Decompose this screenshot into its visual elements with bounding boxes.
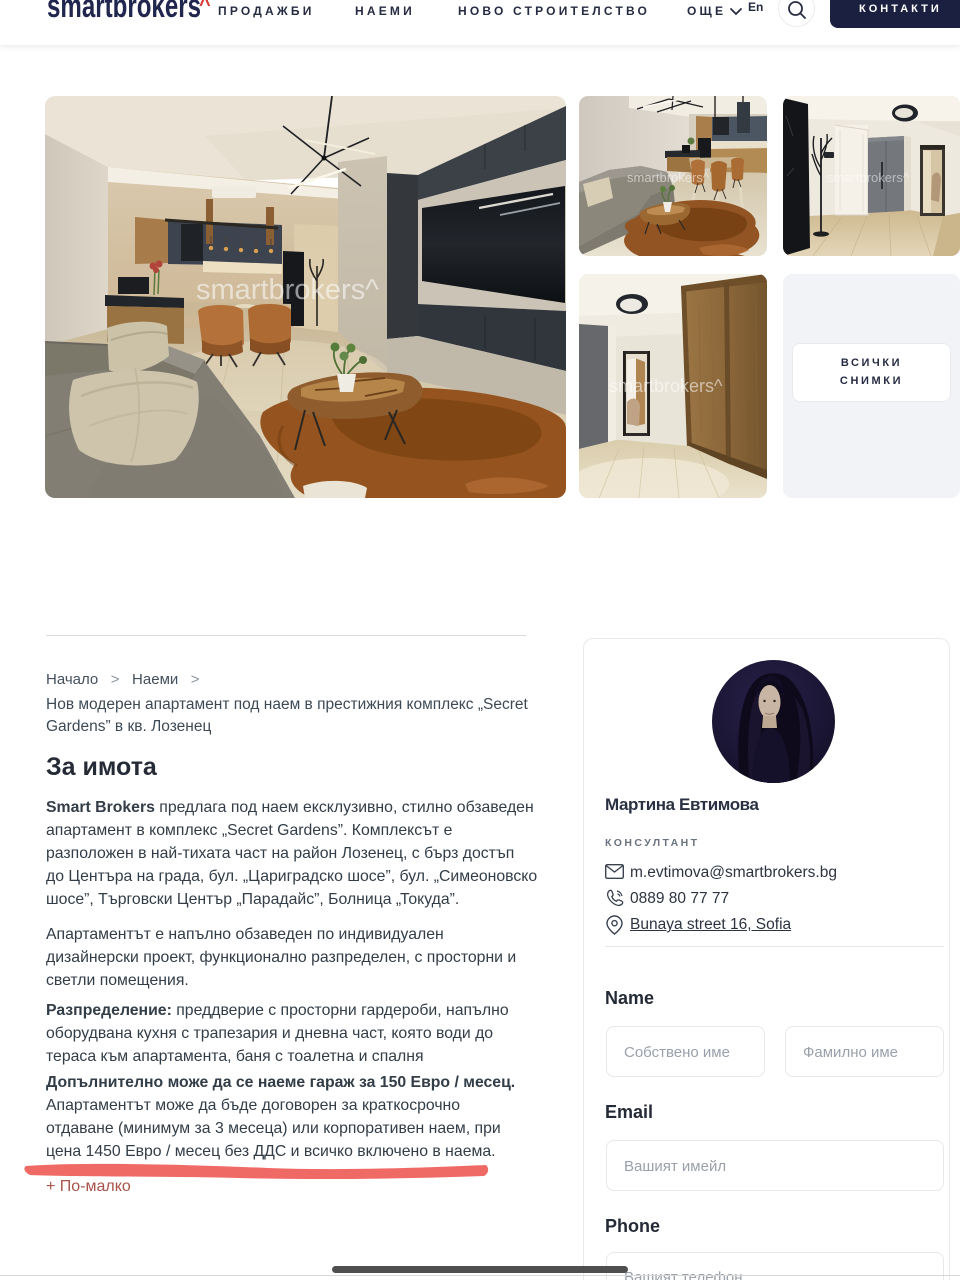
svg-text:smartbrokers^: smartbrokers^ [609,376,723,396]
svg-text:smartbrokers^: smartbrokers^ [827,170,910,185]
svg-text:smartbrokers^: smartbrokers^ [627,170,710,185]
svg-text:smartbrokers^: smartbrokers^ [196,274,379,306]
